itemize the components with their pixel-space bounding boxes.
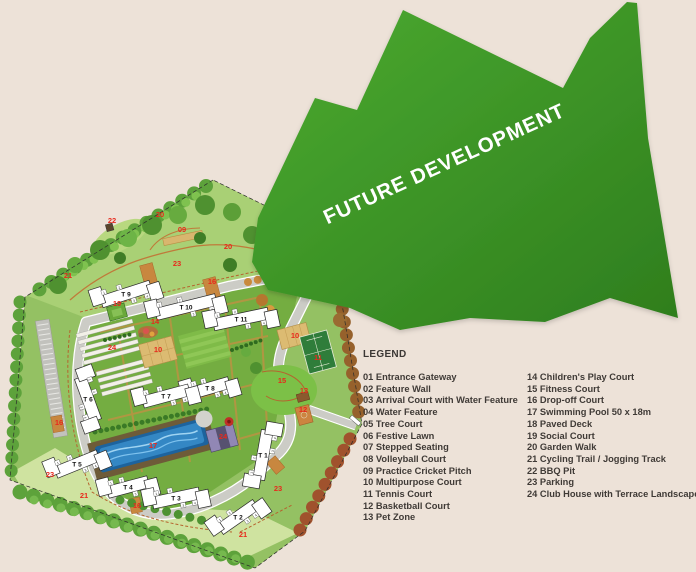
map-marker-23: 23: [274, 484, 282, 493]
map-marker-21: 21: [239, 530, 247, 539]
map-marker-09: 09: [178, 225, 186, 234]
map-marker-14: 14: [151, 317, 160, 326]
legend-item: 14 Children's Play Court: [527, 372, 695, 384]
legend-item: 12 Basketball Court: [363, 501, 525, 513]
legend-item: 01 Entrance Gateway: [363, 372, 525, 384]
legend-item: 11 Tennis Court: [363, 489, 525, 501]
legend-item: 06 Festive Lawn: [363, 431, 525, 443]
map-marker-10: 10: [291, 331, 299, 340]
map-marker-20: 20: [224, 242, 232, 251]
legend-item: 13 Pet Zone: [363, 512, 525, 524]
legend-item: 02 Feature Wall: [363, 384, 525, 396]
map-marker-17: 17: [149, 441, 157, 450]
tower-label: T 5: [72, 462, 82, 469]
map-marker-13: 13: [300, 386, 308, 395]
childrens-play-court: [138, 326, 158, 338]
legend-item: 19 Social Court: [527, 431, 695, 443]
map-marker-21: 21: [80, 491, 88, 500]
map-marker-11: 11: [314, 353, 322, 362]
legend-item: 22 BBQ Pit: [527, 466, 695, 478]
legend-column-2: 14 Children's Play Court 15 Fitness Cour…: [527, 372, 695, 501]
legend-item: 04 Water Feature: [363, 407, 525, 419]
tower-label: T 6: [83, 397, 93, 404]
map-marker-24: 24: [108, 343, 117, 352]
map-marker-10: 10: [154, 345, 162, 354]
map-marker-23: 23: [173, 259, 181, 268]
tower-label: T 3: [171, 496, 181, 503]
dropoff-plaza: [196, 411, 213, 428]
map-marker-16: 16: [208, 277, 216, 286]
tower-label: T 1: [258, 453, 268, 460]
future-development-arrow: FUTURE DEVELOPMENT: [252, 2, 678, 330]
map-marker-16: 16: [55, 418, 63, 427]
map-marker-24: 24: [219, 432, 228, 441]
map-marker-20: 20: [156, 210, 164, 219]
tower-label: T 11: [235, 317, 248, 324]
tower-label: T 10: [179, 305, 192, 312]
map-marker-22: 22: [108, 216, 116, 225]
legend-item: 24 Club House with Terrace Landscape: [527, 489, 695, 501]
tower-label: T 2: [233, 515, 243, 522]
legend-column-1: 01 Entrance Gateway 02 Feature Wall 03 A…: [363, 372, 525, 524]
tower-label: T 9: [121, 292, 131, 299]
tower-label: T 4: [123, 485, 133, 492]
legend-item: 23 Parking: [527, 477, 695, 489]
legend-item: 16 Drop-off Court: [527, 395, 695, 407]
legend-item: 08 Volleyball Court: [363, 454, 525, 466]
map-marker-16: 16: [133, 501, 141, 510]
map-marker-21: 21: [64, 271, 72, 280]
legend-item: 09 Practice Cricket Pitch: [363, 466, 525, 478]
legend-item: 15 Fitness Court: [527, 384, 695, 396]
map-marker-19: 19: [113, 299, 121, 308]
legend-item: 18 Paved Deck: [527, 419, 695, 431]
legend-item: 05 Tree Court: [363, 419, 525, 431]
map-marker-23: 23: [46, 470, 54, 479]
legend-item: 07 Stepped Seating: [363, 442, 525, 454]
legend-item: 20 Garden Walk: [527, 442, 695, 454]
legend-item: 17 Swimming Pool 50 x 18m: [527, 407, 695, 419]
legend-title: LEGEND: [363, 349, 693, 360]
tower-label: T 7: [161, 394, 171, 401]
legend-item: 21 Cycling Trail / Jogging Track: [527, 454, 695, 466]
legend-item: 10 Multipurpose Court: [363, 477, 525, 489]
map-marker-12: 12: [299, 405, 307, 414]
masterplan-page: 1234T 91234T 101234T 111234T 81234T 7123…: [0, 0, 696, 572]
legend: LEGEND 01 Entrance Gateway 02 Feature Wa…: [363, 349, 693, 372]
map-marker-15: 15: [278, 376, 286, 385]
tower-label: T 8: [205, 386, 215, 393]
legend-item: 03 Arrival Court with Water Feature: [363, 395, 525, 407]
